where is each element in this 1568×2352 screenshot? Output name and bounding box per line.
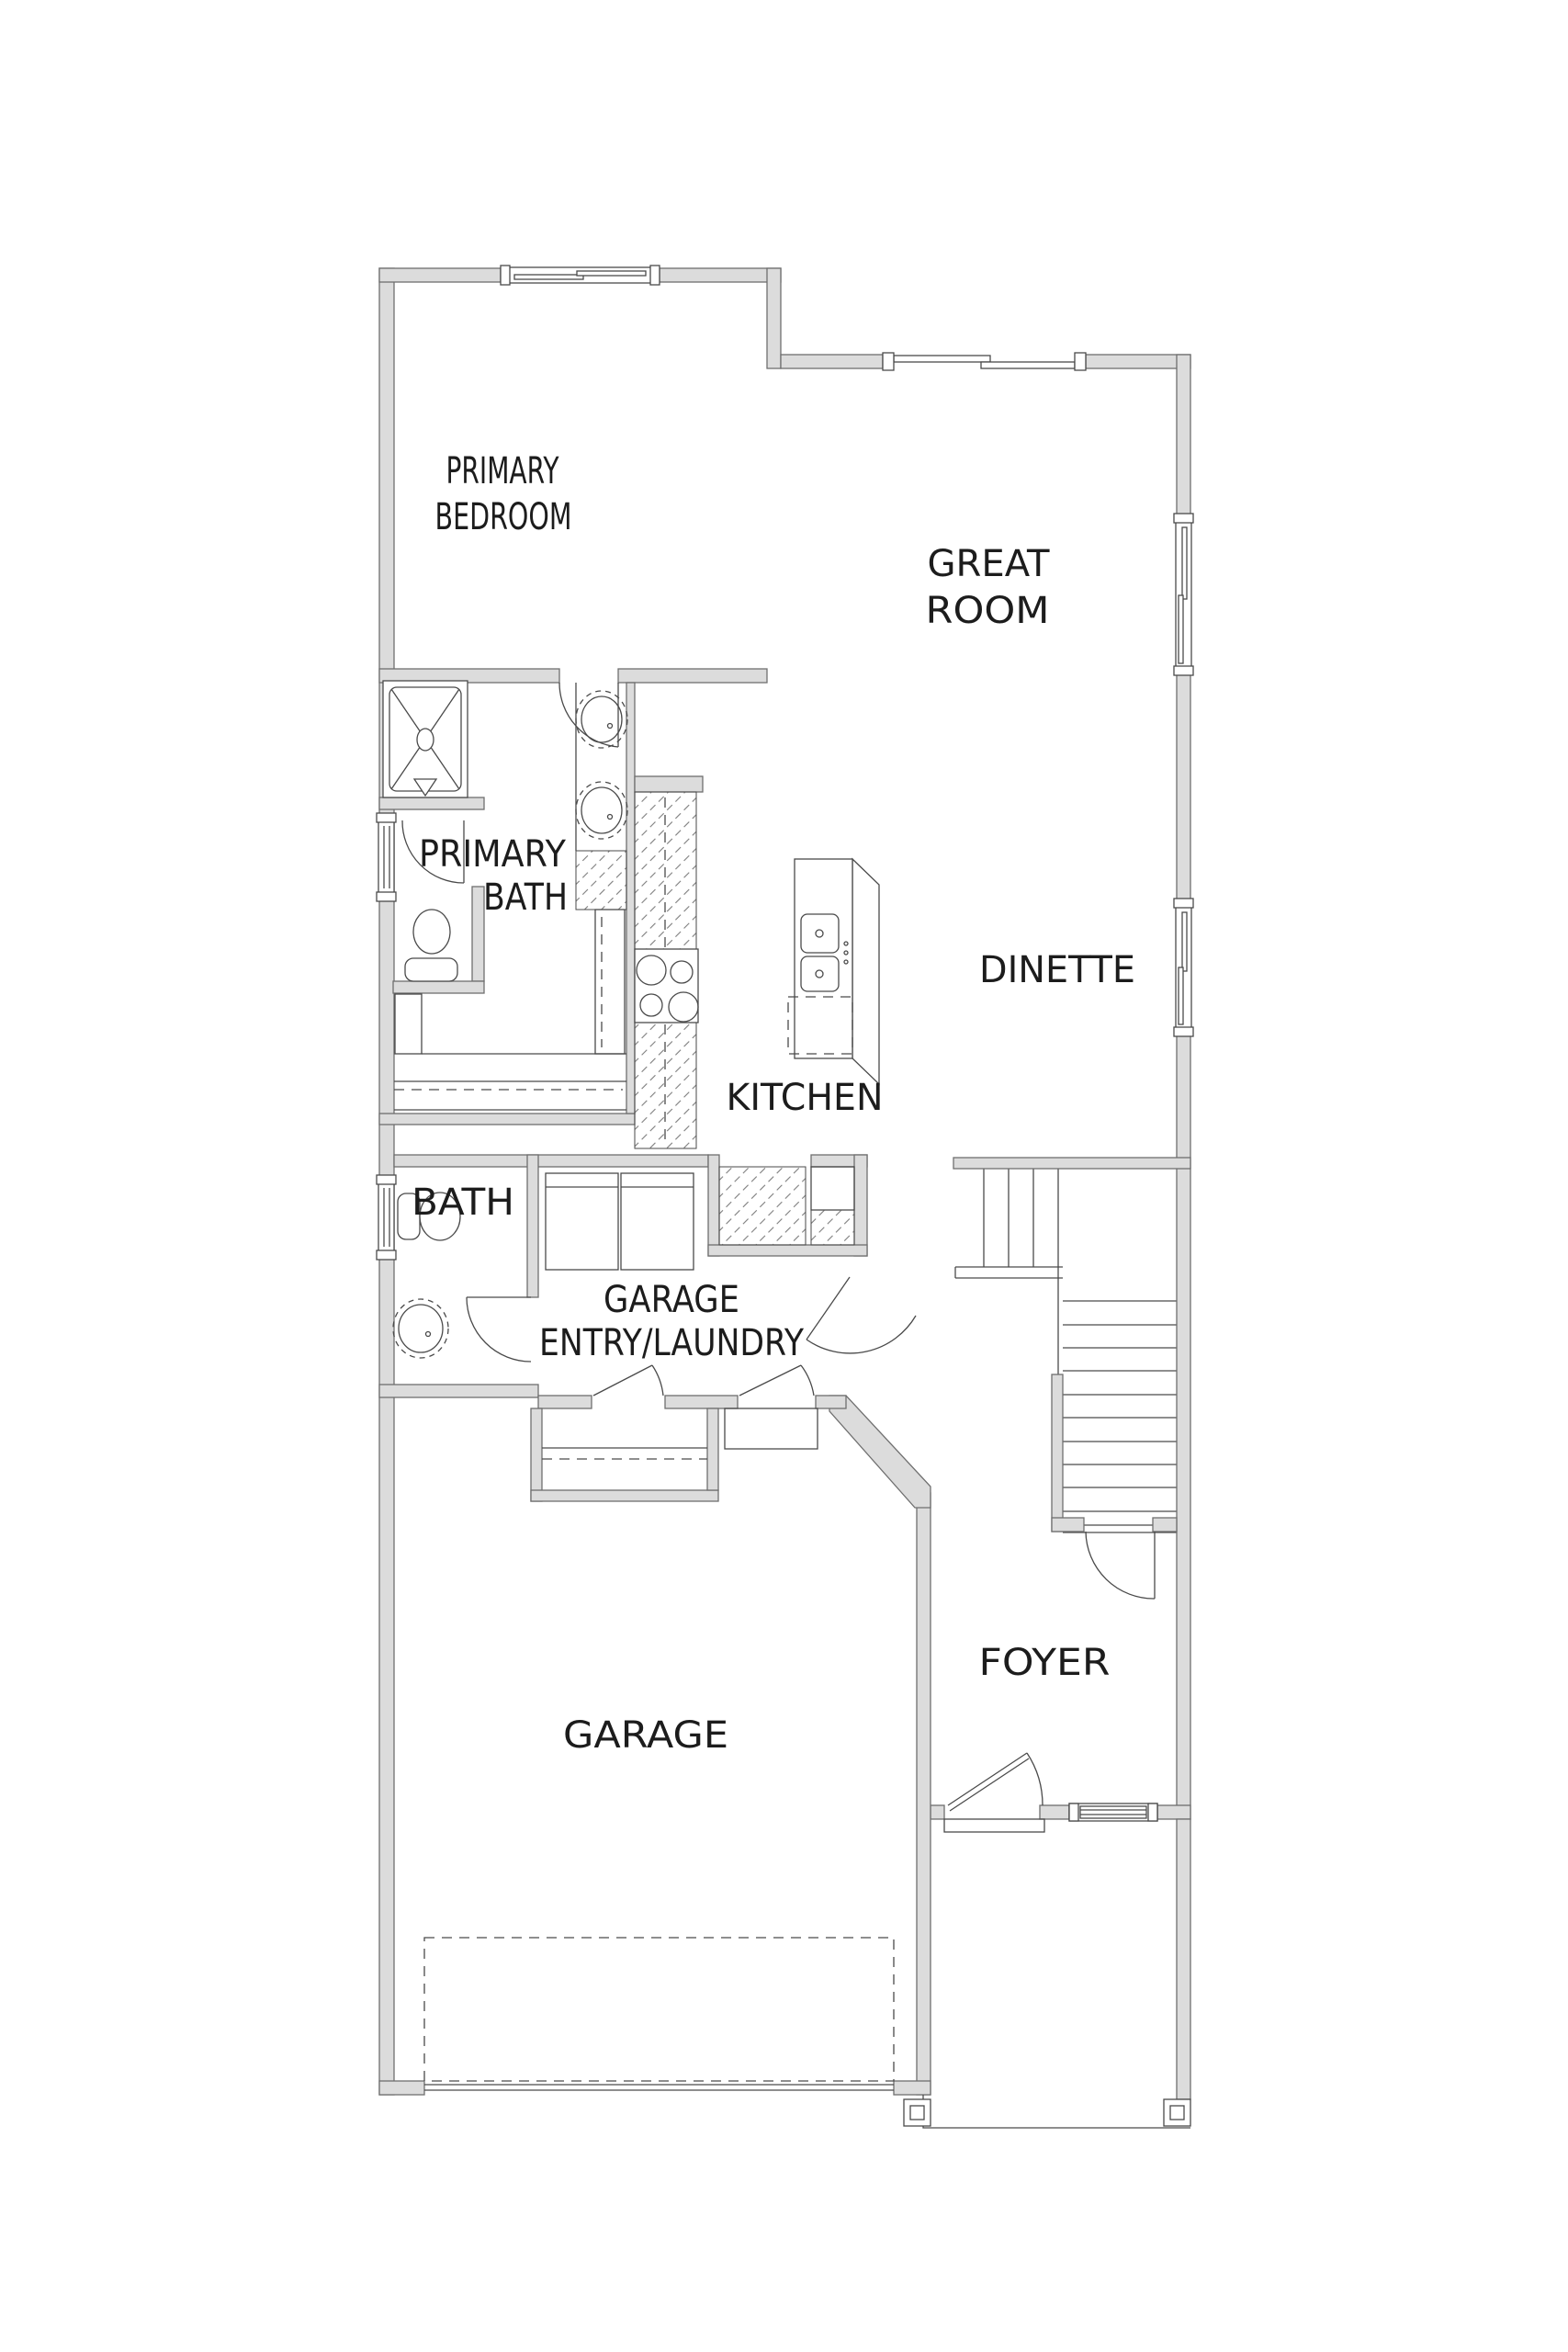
great-room-top-wall-right (1086, 355, 1190, 368)
garage-door-headroom-dashed (424, 1938, 894, 2081)
bedroom-right-wall (767, 268, 781, 368)
room-label-primary-bedroom: PRIMARY (446, 450, 559, 492)
laundry-bottom-wall-1 (538, 1396, 592, 1408)
porch-post-right (1164, 2099, 1190, 2126)
garage-right-wall (917, 1493, 931, 2095)
kitchen-wet-wall (626, 683, 635, 1114)
stair-bottom-wall-right (1153, 1518, 1177, 1532)
pantry-bottom-wall (708, 1245, 867, 1256)
laundry-bottom-wall-3 (816, 1396, 846, 1408)
dinette-window (1174, 899, 1193, 1036)
entry-threshold (944, 1819, 1044, 1832)
bath-sink (393, 1299, 448, 1358)
room-label-garage-entry: GARAGE (604, 1279, 739, 1321)
stoop-left-wall (531, 1408, 542, 1501)
pantry-left-wall (708, 1155, 719, 1256)
room-label-foyer: FOYER (979, 1642, 1111, 1684)
entry-sidelite-window (1069, 1804, 1157, 1821)
island-sink-bowl (801, 914, 839, 953)
garage-features (424, 1938, 894, 2090)
walk-in-closet (394, 994, 626, 1110)
water-closet-window (377, 813, 396, 901)
room-label-garage-entry: ENTRY/LAUNDRY (539, 1322, 804, 1364)
room-label-great-room: ROOM (926, 590, 1050, 632)
porch (904, 2095, 1190, 2128)
front-entry-door (944, 1753, 1044, 1832)
bath-window (377, 1175, 396, 1260)
porch-post-left (904, 2099, 931, 2126)
garage-bottom-wall-right (894, 2081, 931, 2095)
room-label-dinette: DINETTE (979, 949, 1135, 991)
washer (546, 1173, 618, 1270)
suite-bottom-wall (379, 1114, 635, 1125)
stair-left-wall (1052, 1374, 1063, 1532)
laundry-garage-door (593, 1365, 663, 1396)
great-room-top-wall-left (781, 355, 883, 368)
bedroom-window (501, 266, 660, 285)
stair-door (1086, 1532, 1155, 1599)
garage-stoop (542, 1448, 707, 1459)
patio-slider-door (883, 353, 1086, 370)
room-label-primary-bath: BATH (483, 876, 568, 919)
stair-bottom-wall-left (1052, 1518, 1084, 1532)
laundry-bottom-wall-2 (665, 1396, 738, 1408)
angled-garage-foyer-wall (829, 1396, 931, 1508)
water-closet-bottom-wall (393, 981, 484, 993)
vanity-cabinet-hatch (576, 851, 626, 910)
linen-closet (395, 994, 422, 1054)
room-label-great-room: GREAT (928, 543, 1051, 585)
entry-wall-stub (931, 1805, 944, 1819)
vanity-counter-lower (595, 910, 625, 1054)
room-label-primary-bedroom: BEDROOM (435, 496, 572, 538)
bath-door (467, 1297, 531, 1362)
kitchen-laundry-door (807, 1277, 916, 1353)
laundry-closet (725, 1408, 818, 1449)
cooktop (635, 949, 698, 1023)
kitchen-counter-cap (635, 776, 703, 792)
top-wall-left (379, 268, 501, 282)
room-label-kitchen: KITCHEN (727, 1077, 884, 1119)
bath-right-wall (527, 1155, 538, 1297)
bath-bottom-wall (379, 1385, 538, 1397)
room-label-primary-bath: PRIMARY (419, 833, 567, 876)
entry-wall-right (1157, 1805, 1190, 1819)
staircase (955, 1169, 1177, 1532)
stoop-bottom-wall (531, 1490, 718, 1501)
laundry-bath-top-wall (394, 1155, 708, 1167)
water-closet-toilet (405, 910, 457, 981)
dryer (621, 1173, 694, 1270)
room-label-garage: GARAGE (563, 1714, 728, 1757)
porch-slab-edge (923, 2095, 1190, 2128)
room-label-bath: BATH (412, 1182, 514, 1224)
kitchen-island (788, 859, 879, 1084)
entry-wall-mid (1040, 1805, 1069, 1819)
floor-plan-drawing: PRIMARY BEDROOM GREAT ROOM PRIMARY BATH … (0, 0, 1568, 2352)
vanity-double-sink (576, 683, 627, 1054)
island-sink-bowl (801, 956, 839, 991)
floor-plan-page: { "page": { "type": "architectural-floor… (0, 0, 1568, 2352)
pantry-cabinets (719, 1167, 854, 1245)
pantry-right-wall (854, 1155, 867, 1256)
bedroom-bottom-wall-right (618, 669, 767, 683)
laundry-closet-door (739, 1365, 814, 1396)
porch-right-wall (1177, 1819, 1190, 2099)
garage-bottom-wall-left (379, 2081, 424, 2095)
room-labels: PRIMARY BEDROOM GREAT ROOM PRIMARY BATH … (412, 450, 1135, 1757)
dinette-bottom-wall (953, 1158, 1190, 1169)
top-wall-right (660, 268, 781, 282)
shower-fixture (383, 681, 468, 797)
shower-bottom-wall (379, 797, 484, 809)
great-room-window (1174, 514, 1193, 675)
stoop-right-wall (707, 1408, 718, 1490)
